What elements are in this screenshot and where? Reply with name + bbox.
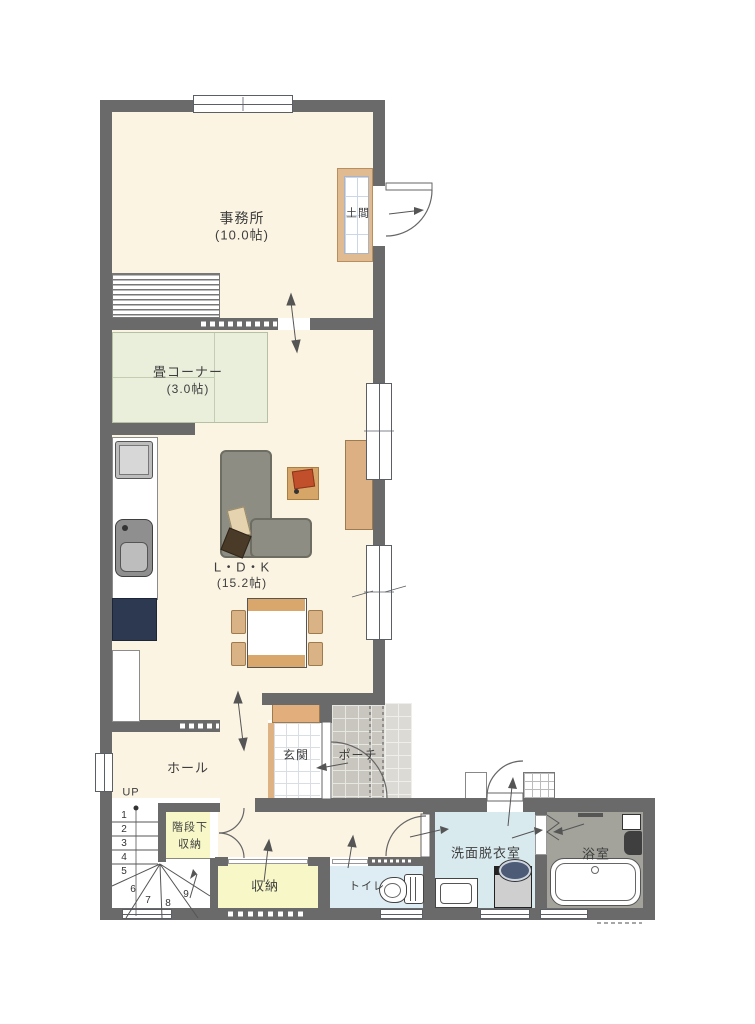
vanity-unit <box>435 878 478 908</box>
ldk-passage-floor <box>220 720 268 732</box>
bathtub <box>550 858 641 906</box>
genkan-label: 玄関 <box>283 749 309 761</box>
table-end-top <box>248 599 305 611</box>
dining-chair-4 <box>308 642 323 666</box>
under-stairs-label-2: 収納 <box>178 840 202 851</box>
wall-tatami-stub <box>100 423 195 435</box>
stair-step-1: 1 <box>121 811 127 821</box>
toilet-label: トイレ <box>349 882 385 893</box>
kitchen-stove <box>115 441 153 479</box>
washroom-bottom-window <box>480 909 530 919</box>
wall-genkan-right <box>320 705 332 723</box>
wall-stairs-top <box>158 803 220 812</box>
stair-step-5: 5 <box>121 867 127 877</box>
wall-wing-top-right <box>523 798 655 812</box>
doma-entry-door <box>386 183 432 236</box>
kitchen-cabinet <box>112 650 140 722</box>
wall-toilet-washroom <box>423 812 435 920</box>
ldk-window-lower <box>366 545 392 640</box>
under-stairs-label-1: 階段下 <box>172 823 208 834</box>
stove-inner <box>119 445 149 475</box>
wall-wing-top-left <box>255 798 487 812</box>
hall-label: ホール <box>167 762 209 775</box>
bath-shelf <box>578 813 603 817</box>
vanity-sink <box>440 883 472 904</box>
toilet-tank-lines <box>410 877 416 901</box>
office-label: 事務所 <box>220 211 265 225</box>
stair-step-6: 6 <box>130 885 136 895</box>
washing-machine-lid <box>499 860 531 881</box>
tatami-size-label: (3.0帖) <box>167 383 210 395</box>
shoe-cabinet <box>272 703 320 723</box>
bathtub-drain <box>591 866 599 874</box>
dining-table <box>247 598 307 668</box>
dining-chair-1 <box>231 610 246 634</box>
sofa-seat <box>250 518 312 558</box>
wall-storage-toilet-stub <box>308 857 330 866</box>
tatami-label: 畳コーナー <box>153 366 223 379</box>
wall-stairs-side <box>158 803 166 862</box>
table-end-bottom <box>248 655 305 667</box>
hall-left-window <box>95 753 113 792</box>
ldk-label: L・D・K <box>214 561 270 574</box>
floor-plan-canvas: 事務所 (10.0帖) 土間 畳コーナー (3.0帖) L・D・K (15.2帖… <box>0 0 755 1024</box>
porch-outer-step <box>385 703 412 800</box>
stair-step-3: 3 <box>121 839 127 849</box>
shower-seat <box>624 831 642 855</box>
wall-right-upper <box>373 112 385 186</box>
backdoor-step <box>465 772 487 800</box>
bath-bottom-window <box>540 909 588 919</box>
stair-step-4: 4 <box>121 853 127 863</box>
stair-step-2: 2 <box>121 825 127 835</box>
stairs-bottom-window <box>122 909 172 919</box>
office-size-label: (10.0帖) <box>215 229 269 242</box>
kitchen-sink <box>115 519 153 577</box>
bath-door-panel <box>535 815 547 855</box>
ldk-size-label: (15.2帖) <box>217 577 267 589</box>
stair-step-9: 9 <box>183 890 189 900</box>
hall-corridor-gap <box>220 798 255 812</box>
rug-teapot <box>294 489 299 494</box>
wall-office-ldk-left <box>100 318 278 330</box>
bathroom-label: 浴室 <box>582 848 610 861</box>
office-slatted-bench <box>112 273 220 318</box>
stair-step-7: 7 <box>145 896 151 906</box>
back-door-arrow <box>508 777 517 789</box>
stair-step-8: 8 <box>165 899 171 909</box>
storage-folding-door <box>228 859 308 864</box>
porch-label: ポーチ <box>338 749 377 761</box>
doma-exit-arrow <box>414 207 424 215</box>
toilet-door-panel <box>332 859 368 864</box>
storage-label: 収納 <box>251 880 279 893</box>
wall-left <box>100 112 112 920</box>
washroom-label: 洗面脱衣室 <box>451 847 521 860</box>
under-stairs-storage-floor <box>166 812 210 859</box>
corridor-floor <box>218 812 425 857</box>
rug-cushion-red <box>292 469 315 490</box>
wall-toilet-top <box>368 857 423 866</box>
wall-storage-top-stub <box>215 857 228 866</box>
toilet-bottom-window <box>380 909 423 919</box>
sink-basin <box>120 542 148 572</box>
wall-genkan-top <box>262 693 385 705</box>
toilet-tank <box>404 874 424 904</box>
shower-mixer-box <box>622 814 641 830</box>
wall-wing-right <box>643 798 655 920</box>
doma-label: 土間 <box>346 209 370 220</box>
wall-office-ldk-right <box>310 318 385 330</box>
toilet-bowl-inner <box>384 883 401 898</box>
dining-chair-3 <box>308 610 323 634</box>
office-top-window <box>193 95 293 113</box>
up-label: UP <box>122 788 139 799</box>
refrigerator <box>112 598 157 641</box>
ldk-window-upper <box>366 383 392 480</box>
dining-chair-2 <box>231 642 246 666</box>
sink-faucet <box>122 525 128 531</box>
